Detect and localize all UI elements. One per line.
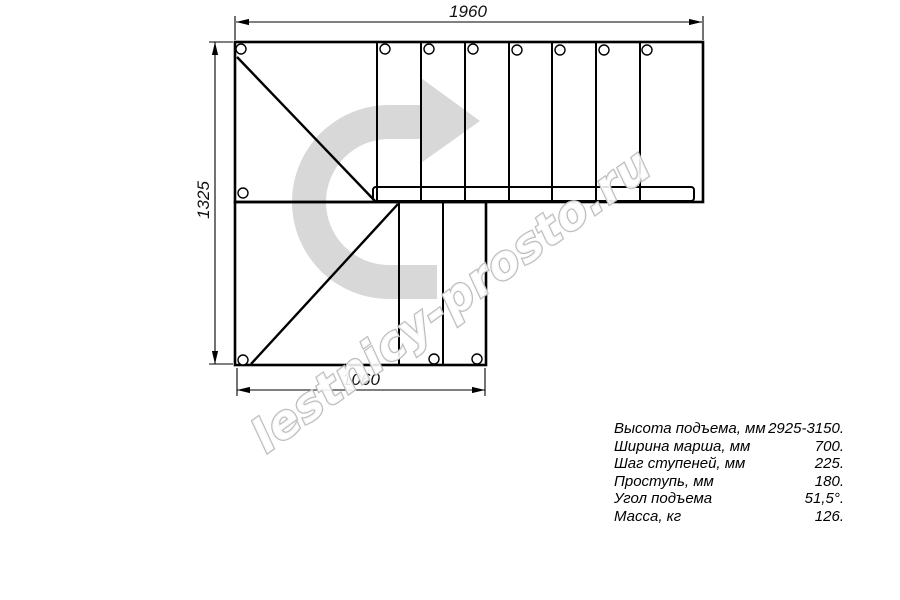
spec-value: 2925-3150. [768,420,844,438]
spec-row-angle: Угол подъема 51,5°. [614,490,844,508]
spec-label: Шаг ступеней, мм [614,455,745,473]
spec-label: Ширина марша, мм [614,438,750,456]
spec-table: Высота подъема, мм 2925-3150. Ширина мар… [614,420,844,526]
spec-row-height: Высота подъема, мм 2925-3150. [614,420,844,438]
spec-label: Высота подъема, мм [614,420,766,438]
spec-row-tread: Проступь, мм 180. [614,473,844,491]
spec-row-march-width: Ширина марша, мм 700. [614,438,844,456]
spec-value: 126. [815,508,844,526]
spec-value: 180. [815,473,844,491]
dimension-left-label: 1325 [194,181,213,219]
stair-plan-page: 1960 1325 1060 lestnicy-prosto.ru Высота… [0,0,900,600]
spec-value: 700. [815,438,844,456]
spec-value: 51,5°. [805,490,844,508]
spec-label: Проступь, мм [614,473,714,491]
spec-value: 225. [815,455,844,473]
spec-row-mass: Масса, кг 126. [614,508,844,526]
spec-row-step-pitch: Шаг ступеней, мм 225. [614,455,844,473]
spec-label: Масса, кг [614,508,681,526]
spec-label: Угол подъема [614,490,712,508]
dimension-top-label: 1960 [449,2,487,21]
